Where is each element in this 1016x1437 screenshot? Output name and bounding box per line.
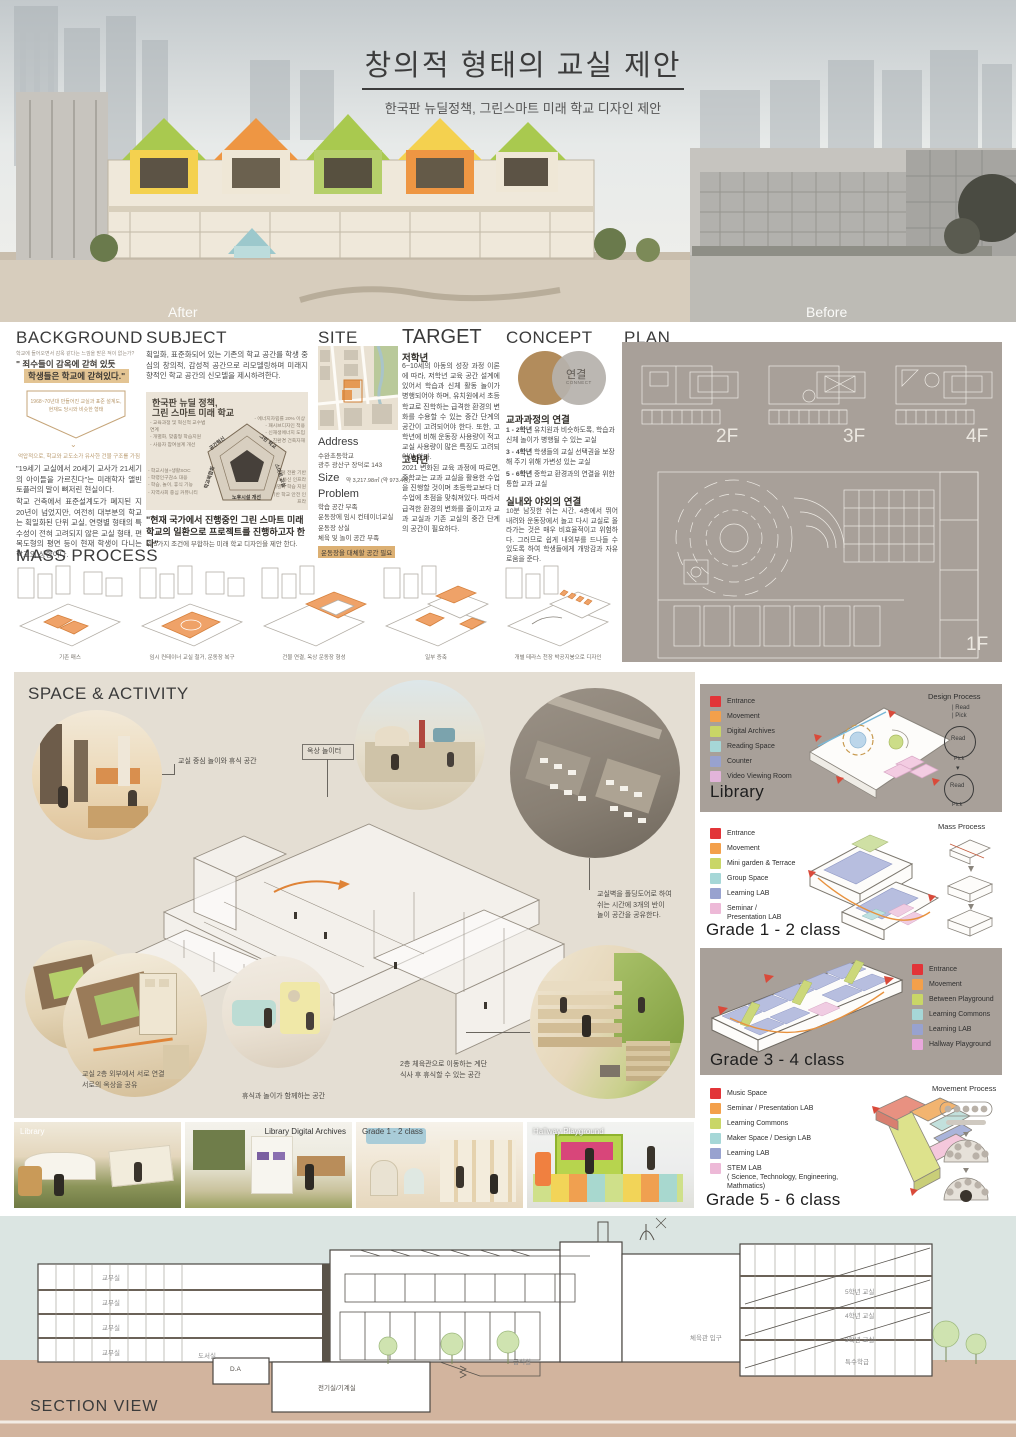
photo-label-library: Library (20, 1127, 44, 1136)
concept-item-grade: 3 - 4학년 (506, 449, 532, 456)
subject-diagram: 한국판 뉴딜 정책, 그린 스마트 미래 학교 - 교육과정 및 혁신적 교수법… (146, 392, 308, 510)
mass-step-5-diagram (502, 564, 614, 650)
photo-strip: Library Library Digital Archives Grade 1… (14, 1122, 695, 1208)
subject-intro: 획일화, 표준화되어 있는 기존의 학교 공간를 학생 중심의 창의적, 감성적… (146, 350, 308, 382)
callout-rooftop-playground-render (355, 680, 485, 810)
grade12-process-title: Mass Process (938, 822, 985, 831)
concept-item-3: 5 - 6학년 중학교 환경과의 연결을 위한 통합 교과 교실 (506, 470, 618, 489)
site-problem-item: 운동장 상실 (318, 524, 404, 534)
concept-heading: CONCEPT (506, 328, 593, 348)
photo-library: Library (14, 1122, 181, 1208)
photo-label-hallway: Hallway Playground (533, 1127, 604, 1136)
site-problem-item: 체육 및 놀이 공간 부족 (318, 534, 404, 544)
concept-item-1: 1 - 2학년 유치원과 비슷하도록, 학습과 신체 놀이가 병행될 수 있는 … (506, 426, 618, 445)
section-right-room-2: 4학년 교실 (845, 1310, 874, 1320)
callout-label-rooftop-share: 교실 2층 외부에서 서로 연결서로의 옥상을 공유 (82, 1070, 232, 1091)
legend-label: STEM LAB( Science, Technology, Engineeri… (727, 1163, 850, 1191)
grade34-title: Grade 3 - 4 class (710, 1050, 845, 1070)
design-process-spiral-2 (944, 774, 974, 804)
mass-step-1-caption: 기존 매스 (14, 653, 126, 661)
legend-swatch (912, 979, 923, 990)
site-problem-item: 학습 공간 부족 (318, 503, 404, 513)
background-paragraph-1: "19세기 교실에서 20세기 교사가 21세기의 아이들을 가르친다"는 미래… (16, 464, 142, 496)
library-panel: Entrance Movement Digital Archives Readi… (700, 684, 1002, 812)
legend-label: Reading Space (727, 741, 775, 751)
background-shield-text-2: 현재도 당시와 비슷한 형태 (28, 406, 124, 413)
callout-rest-play-render (222, 956, 334, 1068)
site-problem-list: 학습 공간 부족 운동장에 임시 컨테이너교실 운동장 상실 체육 및 놀이 공… (318, 503, 404, 545)
page-title: 창의적 형태의 교실 제안 (358, 42, 688, 84)
mass-step-1-diagram (14, 564, 126, 650)
design-process-spiral-1 (944, 726, 976, 758)
callout-classroom-lounge-render (32, 710, 162, 840)
callout-label-gym-stair: 2층 체육관으로 이동하는 계단식사 후 휴식할 수 있는 공간 (400, 1060, 530, 1081)
section-library-label: 도서실 (198, 1350, 216, 1360)
legend-swatch (710, 696, 721, 707)
photo-digital-archives: Library Digital Archives (185, 1122, 352, 1208)
legend-swatch (912, 1039, 923, 1050)
subject-heading: SUBJECT (146, 328, 227, 348)
legend-label: Music Space (727, 1088, 767, 1098)
callout-label-rooftop: 옥상 놀이터 (307, 747, 355, 758)
legend-label: Learning LAB (929, 1024, 971, 1034)
subject-list-left-bottom: - 학교시설+생활SOC- 학령인구감소 대응- 학습, 놀이, 휴식 기능- … (148, 468, 206, 497)
target-low-text: 6~10세의 아동의 성장 과정 이론에 따라, 저학년 교육 공간 설계에 있… (402, 362, 500, 463)
design-process-spiral-1-read: Read (951, 736, 965, 742)
background-tagline: 학교에 들어오면서 감옥 같다는 느낌을 받은 적이 없는가? (16, 350, 142, 357)
legend-label: Entrance (727, 828, 755, 838)
mass-step-4-diagram (380, 564, 492, 650)
section-right-room-1: 5학년 교실 (845, 1286, 874, 1296)
grade34-legend: Entrance Movement Between Playground Lea… (912, 964, 1000, 1054)
photo-label-grade12: Grade 1 - 2 class (362, 1127, 423, 1136)
target-high-text: 2021 변화된 교육 과정에 따르면, 중학교는 교과 교실을 활용한 수업을… (402, 464, 500, 535)
legend-label: Digital Archives (727, 726, 775, 736)
site-problem-label: Problem (318, 488, 359, 500)
legend-label: Entrance (727, 696, 755, 706)
library-title: Library (710, 782, 764, 802)
legend-swatch (912, 994, 923, 1005)
section-machine-label: 전기실/기계실 (318, 1382, 356, 1392)
legend-swatch (710, 828, 721, 839)
page-subtitle: 한국판 뉴딜정책, 그린스마트 미래 학교 디자인 제안 (338, 98, 708, 117)
site-address-label: Address (318, 436, 358, 448)
grade56-legend: Music Space Seminar / Presentation LAB L… (710, 1088, 850, 1195)
background-shield-caption: 억압적으로, 학교와 교도소가 유사한 건물 구조를 가짐 (14, 452, 144, 460)
legend-label: Seminar / Presentation LAB (727, 1103, 813, 1113)
legend-label: Entrance (929, 964, 957, 974)
photo-label-digital-archives: Library Digital Archives (265, 1127, 346, 1136)
legend-label: Learning LAB (727, 888, 769, 898)
design-process-spiral-2-read: Read (950, 783, 964, 789)
legend-swatch (710, 771, 721, 782)
legend-label: Movement (727, 843, 760, 853)
plan-floor-label-1f: 1F (966, 634, 988, 656)
grade56-panel: Music Space Seminar / Presentation LAB L… (700, 1078, 1002, 1215)
design-process-spiral-2-pick: Pick (952, 802, 962, 808)
design-process-arrow: ▾ (956, 764, 960, 772)
section-room-label-4: 교무실 (102, 1347, 120, 1357)
section-view-heading: SECTION VIEW (30, 1398, 158, 1416)
concept-venn-diagram (512, 348, 612, 408)
site-problem-highlight: 운동장을 대체할 공간 필요 (318, 546, 395, 558)
mass-step-2-diagram (136, 564, 248, 650)
callout-label-rest-play: 휴식과 놀이가 함께하는 공간 (242, 1092, 382, 1103)
site-heading: SITE (318, 328, 358, 348)
legend-swatch (710, 1088, 721, 1099)
legend-label: Counter (727, 756, 752, 766)
concept-item-grade: 5 - 6학년 (506, 471, 532, 478)
legend-label: Video Viewing Room (727, 771, 792, 781)
legend-swatch (710, 843, 721, 854)
concept-venn-sublabel: CONNECT (566, 380, 592, 385)
stem-lab-sublabel: ( Science, Technology, Engineering, Math… (727, 1174, 838, 1190)
plan-floor-label-3f: 3F (843, 426, 865, 448)
legend-swatch (710, 726, 721, 737)
grade56-process-title: Movement Process (932, 1084, 996, 1093)
plan-floor-label-2f: 2F (716, 426, 738, 448)
site-size-value: 약 3,217.98㎡ (약 973.4평) (346, 476, 410, 484)
section-room-label-3: 교무실 (102, 1322, 120, 1332)
grade12-legend: Entrance Movement Mini garden & Terrace … (710, 828, 806, 926)
concept-curriculum-title: 교과과정의 연결 (506, 412, 570, 426)
grade56-movement-process-diagrams (936, 1096, 996, 1206)
legend-label: Learning LAB (727, 1148, 769, 1158)
concept-item-grade: 1 - 2학년 (506, 427, 532, 434)
plan-drawings (622, 342, 1002, 662)
section-gym-label: 체육관 입구 (690, 1332, 722, 1342)
title-divider (362, 88, 684, 90)
legend-label: Movement (727, 711, 760, 721)
site-map (318, 346, 398, 430)
poster: 창의적 형태의 교실 제안 한국판 뉴딜정책, 그린스마트 미래 학교 디자인 … (0, 0, 1016, 1437)
callout-label-folding-door: 교실벽을 폴딩도어로 하여쉬는 시간에 3개의 반이놀이 공간을 공유한다. (597, 890, 707, 922)
mass-step-2-caption: 임시 컨테이너 교실 철거, 운동장 복구 (136, 653, 248, 661)
section-room-label-1: 교무실 (102, 1272, 120, 1282)
legend-label: Group Space (727, 873, 768, 883)
space-activity-panel: SPACE & ACTIVITY (14, 672, 695, 1118)
grade12-axonometric (800, 820, 940, 940)
background-quote-2: 학생들은 학교에 갇혀있다." (24, 369, 129, 383)
legend-swatch (710, 1118, 721, 1129)
legend-swatch (710, 1103, 721, 1114)
legend-swatch (710, 903, 721, 914)
mass-step-4-caption: 일부 증축 (380, 653, 492, 661)
legend-label: Between Playground (929, 994, 994, 1004)
legend-swatch (912, 1024, 923, 1035)
background-shield-arrow: ⌄ (70, 440, 77, 449)
library-process-title: Design Process (928, 692, 981, 701)
grade12-panel: Entrance Movement Mini garden & Terrace … (700, 816, 1002, 945)
grade56-title: Grade 5 - 6 class (706, 1190, 841, 1210)
callout-terrace-stair-render (530, 945, 684, 1099)
background-shield-text-1: 1968~70년대 만들어진 교실과 표준 설계도, (28, 398, 124, 405)
legend-swatch (710, 711, 721, 722)
grade12-mass-process-diagrams (944, 834, 996, 938)
legend-label: Maker Space / Design LAB (727, 1133, 811, 1143)
callout-open-classroom-render (510, 688, 680, 858)
legend-label: Learning Commons (727, 1118, 788, 1128)
section-right-room-3: 3학년 교실 (845, 1334, 874, 1344)
legend-swatch (710, 1163, 721, 1174)
section-da-label: D.A (230, 1366, 241, 1373)
legend-swatch (710, 1148, 721, 1159)
legend-label: Hallway Playground (929, 1039, 991, 1049)
section-room-label-2: 교무실 (102, 1297, 120, 1307)
legend-swatch (912, 1009, 923, 1020)
photo-hallway-playground: Hallway Playground (527, 1122, 694, 1208)
background-heading: BACKGROUND (16, 328, 143, 348)
mass-step-5-caption: 개별 테라스 천장 박공지붕으로 디자인 (502, 653, 614, 661)
target-heading: TARGET (402, 326, 482, 349)
background-shield-diagram (24, 388, 128, 442)
site-address-line2: 광주 광산구 장덕로 143 (318, 459, 382, 469)
site-problem-item: 운동장에 임시 컨테이너교실 (318, 513, 404, 523)
subject-diagram-title-2: 그린 스마트 미래 학교 (152, 406, 234, 419)
legend-swatch (710, 756, 721, 767)
concept-inout-text: 10분 남짓한 쉬는 시간, 4층에서 뛰어 내려와 운동장에서 놀고 다시 교… (506, 507, 618, 564)
legend-swatch (710, 858, 721, 869)
library-axonometric (792, 690, 952, 806)
legend-label: Mini garden & Terrace (727, 858, 795, 868)
grade34-panel: Entrance Movement Between Playground Lea… (700, 948, 1002, 1075)
plan-floor-label-4f: 4F (966, 426, 988, 448)
before-label: Before (806, 304, 847, 320)
legend-swatch (710, 873, 721, 884)
legend-label: Movement (929, 979, 962, 989)
legend-label: Learning Commons (929, 1009, 990, 1019)
mass-step-3-diagram (258, 564, 370, 650)
legend-swatch (710, 888, 721, 899)
pentagon-label-old: 노후시설 개선 (232, 494, 261, 501)
subject-statement-note: 위 5가지 조건에 부합하는 미래 학교 디자인을 제안 한다. (146, 538, 310, 548)
library-legend: Entrance Movement Digital Archives Readi… (710, 696, 802, 786)
legend-swatch (912, 964, 923, 975)
mass-process-heading: MASS PROCESS (16, 546, 158, 566)
space-activity-heading: SPACE & ACTIVITY (28, 684, 189, 704)
concept-item-2: 3 - 4학년 학생들의 교실 선택권을 보장해 주기 위해 가변성 있는 교실 (506, 448, 618, 467)
mass-step-3-caption: 건물 연결, 옥상 운동장 형성 (258, 653, 370, 661)
photo-grade12-class: Grade 1 - 2 class (356, 1122, 523, 1208)
callout-label-classroom-lounge: 교실 중심 놀이와 휴식 공간 (178, 757, 298, 768)
concept-inout-title: 실내와 야외의 연결 (506, 494, 581, 508)
site-size-label: Size (318, 472, 339, 484)
design-process-step-labels: | Read| Pick (952, 704, 970, 721)
section-right-room-4: 특수학급 (845, 1356, 869, 1366)
after-label: After (168, 304, 198, 320)
design-process-spiral-1-pick: Pick (954, 756, 964, 762)
legend-swatch (710, 741, 721, 752)
legend-swatch (710, 1133, 721, 1144)
section-cafeteria-label: 급식실 (513, 1356, 531, 1366)
subject-list-left-top: - 교육과정 및 혁신적 교수법 연계- 개별화, 맞춤형 학습지원- 사용자 … (150, 420, 210, 449)
